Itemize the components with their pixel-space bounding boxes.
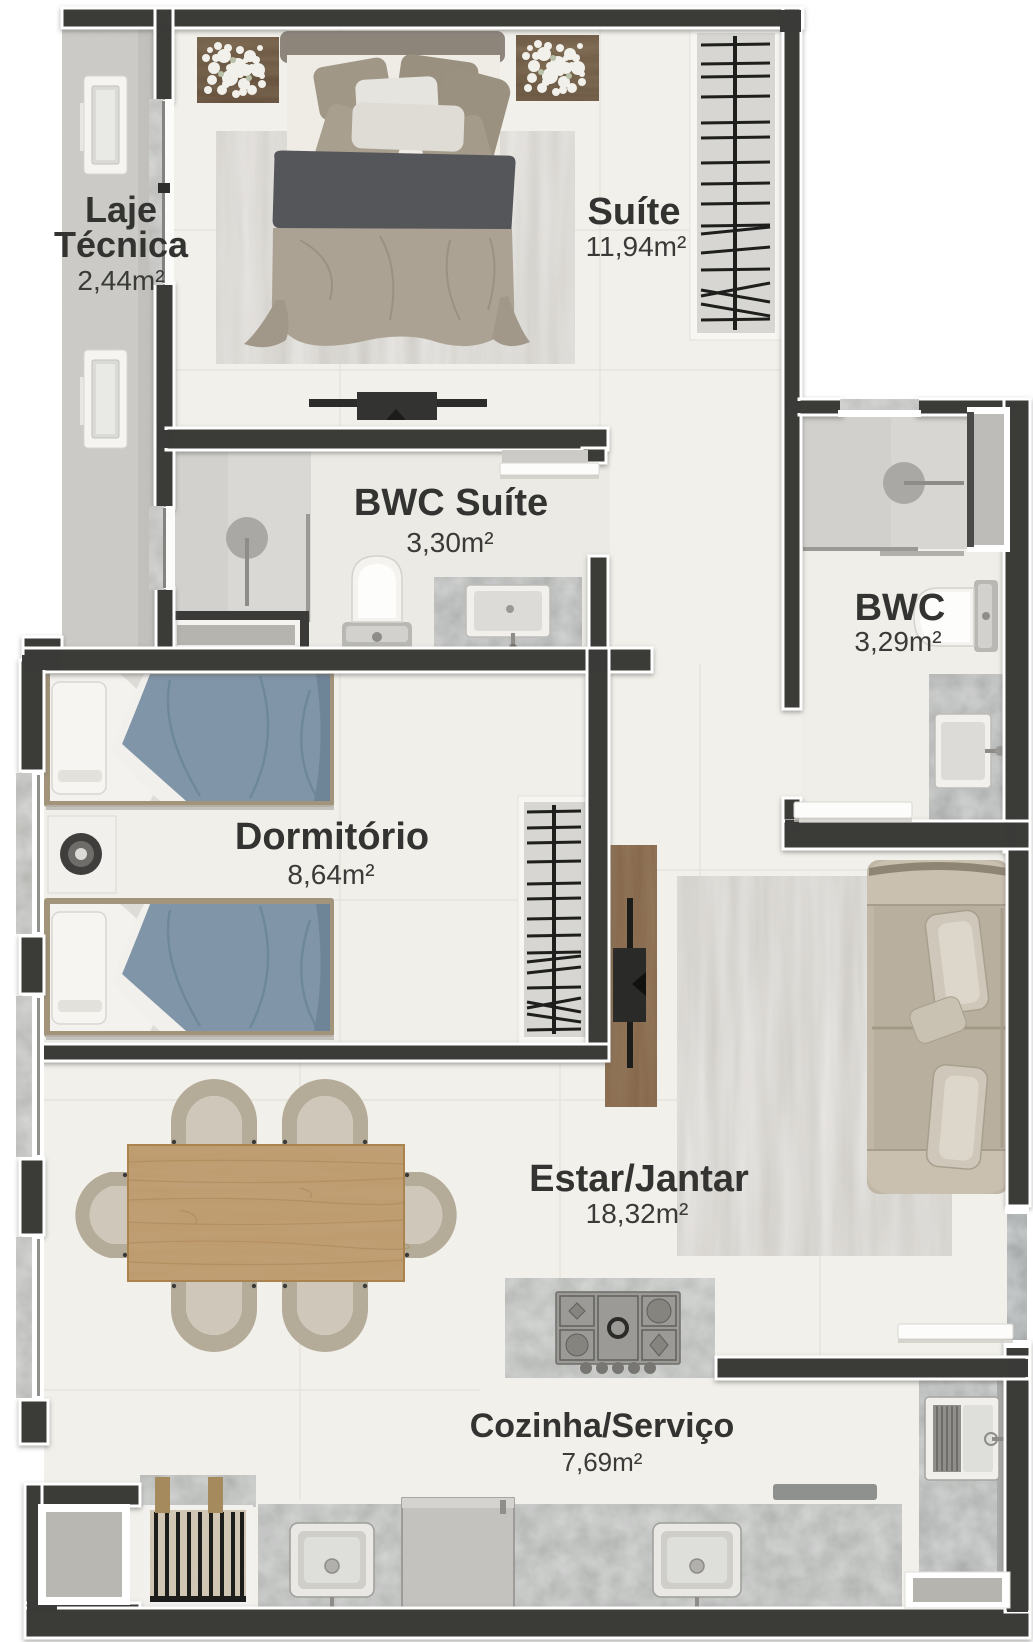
svg-text:BWC Suíte: BWC Suíte [354, 482, 548, 524]
svg-text:BWC: BWC [855, 587, 946, 629]
svg-text:7,69m²: 7,69m² [562, 1447, 643, 1477]
svg-text:Dormitório: Dormitório [235, 816, 429, 858]
svg-text:8,64m²: 8,64m² [287, 859, 374, 890]
svg-text:Cozinha/Serviço: Cozinha/Serviço [470, 1407, 735, 1445]
svg-text:Suíte: Suíte [588, 191, 681, 233]
svg-text:2,44m²: 2,44m² [77, 265, 164, 296]
svg-text:18,32m²: 18,32m² [586, 1198, 689, 1229]
svg-text:Estar/Jantar: Estar/Jantar [529, 1158, 749, 1200]
svg-text:3,30m²: 3,30m² [406, 527, 493, 558]
svg-text:3,29m²: 3,29m² [854, 626, 941, 657]
svg-text:Técnica: Técnica [54, 224, 189, 265]
svg-text:11,94m²: 11,94m² [586, 231, 687, 262]
